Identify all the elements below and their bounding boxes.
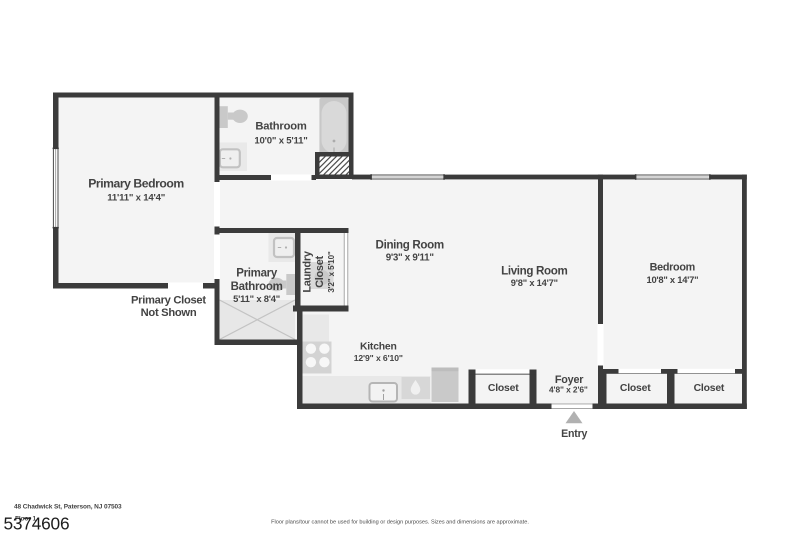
svg-text:4'8" x 2'6": 4'8" x 2'6" bbox=[549, 385, 588, 395]
svg-text:Dining Room: Dining Room bbox=[376, 239, 444, 252]
svg-text:10'0" x 5'11": 10'0" x 5'11" bbox=[254, 135, 307, 146]
svg-text:Primary Closet: Primary Closet bbox=[131, 295, 206, 307]
svg-text:10'8" x 14'7": 10'8" x 14'7" bbox=[646, 274, 698, 285]
svg-text:3'2" x 5'10": 3'2" x 5'10" bbox=[327, 251, 336, 293]
svg-text:Floor plans/tour cannot be use: Floor plans/tour cannot be used for buil… bbox=[271, 519, 529, 525]
svg-text:Bathroom: Bathroom bbox=[231, 281, 283, 293]
svg-text:Closet: Closet bbox=[620, 383, 651, 394]
svg-text:11'11" x 14'4": 11'11" x 14'4" bbox=[107, 193, 165, 204]
svg-text:Living Room: Living Room bbox=[501, 265, 567, 278]
svg-text:Not Shown: Not Shown bbox=[141, 307, 197, 319]
svg-text:5'11" x 8'4": 5'11" x 8'4" bbox=[233, 293, 280, 304]
svg-text:Bathroom: Bathroom bbox=[255, 121, 306, 133]
svg-text:9'3" x 9'11": 9'3" x 9'11" bbox=[386, 252, 434, 263]
svg-text:48 Chadwick St, Paterson, NJ 0: 48 Chadwick St, Paterson, NJ 07503 bbox=[14, 504, 122, 511]
svg-text:12'9" x 6'10": 12'9" x 6'10" bbox=[354, 353, 403, 363]
svg-text:Closet: Closet bbox=[314, 255, 326, 287]
svg-text:Laundry: Laundry bbox=[302, 250, 314, 292]
svg-text:Kitchen: Kitchen bbox=[360, 342, 397, 353]
svg-text:Closet: Closet bbox=[694, 383, 725, 394]
svg-text:Primary Bedroom: Primary Bedroom bbox=[88, 177, 184, 191]
svg-text:Primary: Primary bbox=[236, 268, 278, 280]
svg-text:Bedroom: Bedroom bbox=[650, 262, 695, 274]
svg-text:Entry: Entry bbox=[561, 428, 587, 440]
svg-text:9'8" x 14'7": 9'8" x 14'7" bbox=[511, 278, 558, 288]
svg-text:Closet: Closet bbox=[488, 383, 519, 394]
svg-text:5374606: 5374606 bbox=[4, 513, 70, 533]
